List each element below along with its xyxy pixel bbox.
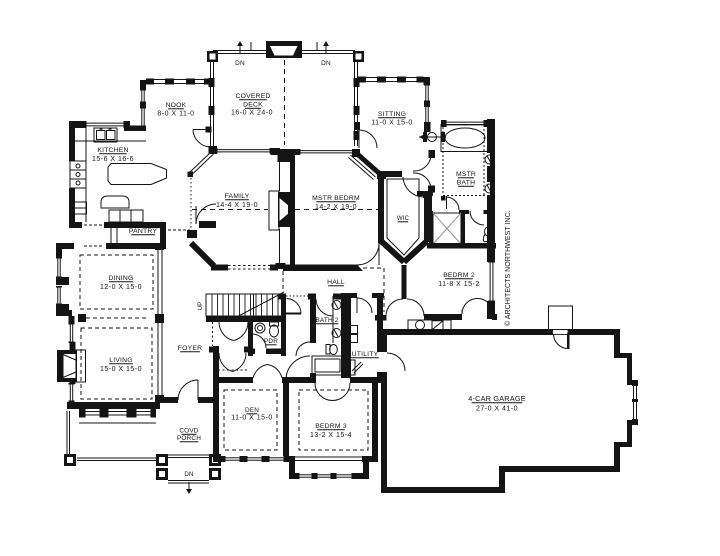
svg-text:LIVING: LIVING bbox=[109, 357, 133, 364]
svg-text:16-0 X 24-0: 16-0 X 24-0 bbox=[231, 110, 273, 117]
svg-text:BEDRM 3: BEDRM 3 bbox=[315, 423, 347, 430]
svg-text:8-0 X 11-0: 8-0 X 11-0 bbox=[157, 111, 194, 118]
svg-text:13-2 X 15-4: 13-2 X 15-4 bbox=[310, 432, 352, 439]
svg-text:27-0 X 41-0: 27-0 X 41-0 bbox=[476, 406, 518, 413]
svg-text:15-6 X 16-6: 15-6 X 16-6 bbox=[92, 156, 134, 163]
svg-text:DN: DN bbox=[321, 60, 331, 67]
svg-text:COVERED: COVERED bbox=[235, 93, 270, 100]
svg-text:14-4 X 19-0: 14-4 X 19-0 bbox=[216, 202, 258, 209]
svg-text:DECK: DECK bbox=[243, 102, 263, 109]
svg-text:BATH: BATH bbox=[457, 180, 475, 187]
svg-text:MSTR BEDRM: MSTR BEDRM bbox=[312, 195, 360, 202]
svg-text:11-0 X 15-0: 11-0 X 15-0 bbox=[231, 415, 273, 422]
svg-text:© ARCHITECTS NORTHWEST INC.: © ARCHITECTS NORTHWEST INC. bbox=[504, 210, 512, 326]
svg-text:DINING: DINING bbox=[109, 275, 134, 282]
svg-text:FOYER: FOYER bbox=[178, 345, 202, 352]
svg-text:MSTR: MSTR bbox=[456, 171, 476, 178]
svg-text:DN: DN bbox=[235, 60, 245, 67]
svg-text:PDR: PDR bbox=[264, 338, 278, 345]
svg-text:UTILITY: UTILITY bbox=[352, 351, 379, 358]
svg-text:KITCHEN: KITCHEN bbox=[97, 147, 128, 154]
svg-text:UP: UP bbox=[197, 302, 204, 311]
svg-text:PANTRY: PANTRY bbox=[129, 228, 157, 235]
svg-text:11-8 X 15-2: 11-8 X 15-2 bbox=[438, 281, 480, 288]
svg-text:BATH 2: BATH 2 bbox=[315, 317, 338, 324]
svg-text:SITTING: SITTING bbox=[378, 111, 406, 118]
svg-text:COVD: COVD bbox=[179, 428, 198, 435]
svg-text:12-0 X 15-0: 12-0 X 15-0 bbox=[100, 284, 142, 291]
svg-text:BEDRM 2: BEDRM 2 bbox=[443, 272, 475, 279]
svg-text:HALL: HALL bbox=[327, 279, 345, 286]
svg-text:15-0 X 15-0: 15-0 X 15-0 bbox=[100, 366, 142, 373]
svg-text:WIC: WIC bbox=[397, 216, 410, 222]
svg-text:4-CAR GARAGE: 4-CAR GARAGE bbox=[468, 394, 526, 403]
svg-text:PORCH: PORCH bbox=[177, 435, 201, 442]
svg-text:11-0 X 15-0: 11-0 X 15-0 bbox=[371, 120, 413, 127]
svg-text:DN: DN bbox=[184, 471, 193, 478]
svg-text:NOOK: NOOK bbox=[166, 102, 187, 109]
svg-text:FAMILY: FAMILY bbox=[225, 193, 250, 200]
svg-text:DEN: DEN bbox=[245, 407, 259, 414]
